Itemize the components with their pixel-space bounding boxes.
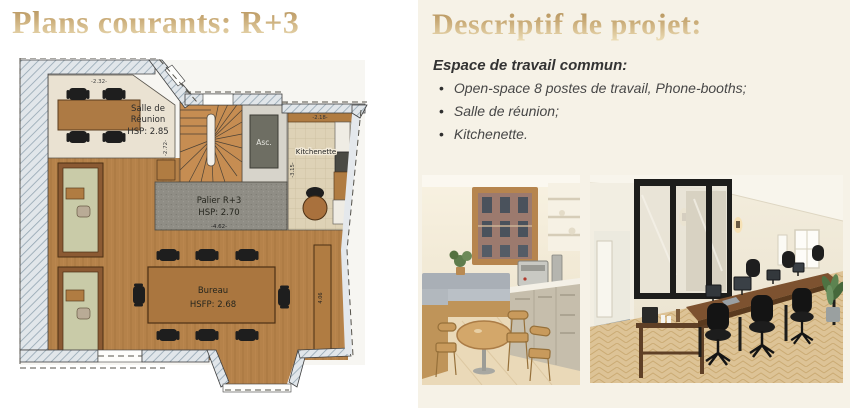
floor-plan-drawing: Salle de Réunion HSP: 2.85 -2.32- -2.72-… [15,58,405,408]
dim-kitchenette-width: -2.18- [312,115,327,121]
glass-partition [634,179,732,299]
window [472,187,538,265]
floor-plan: Salle de Réunion HSP: 2.85 -2.32- -2.72-… [15,58,405,408]
dim-palier-width: -4.62- [211,224,227,230]
bureau-height-label: HSFP: 2.68 [190,300,236,310]
bureau-label: Bureau [198,286,228,296]
dim-bureau-side: 4.06 [318,292,324,303]
list-item-text: Kitchenette. [454,126,528,142]
page-title-right: Descriptif de projet: [432,8,702,42]
bullet-icon: • [433,80,444,96]
list-item: • Kitchenette. [433,126,833,142]
window-bench: 4.06 [314,245,331,350]
cabinet [157,160,175,180]
dim-kitchenette-depth: -3.15- [290,162,296,177]
description-list: • Open-space 8 postes de travail, Phone-… [433,80,833,142]
description-heading: Espace de travail commun: [433,57,833,74]
open-space-photo [590,175,843,383]
page-title-left: Plans courants: R+3 [12,4,299,41]
list-item-text: Open-space 8 postes de travail, Phone-bo… [454,80,747,96]
kitchenette-room: Kitchenette -2.18- -3.15- [288,112,352,230]
list-item-text: Salle de réunion; [454,103,559,119]
salle-label-line1: Salle de [131,104,165,114]
dim-salle-depth: -2.72- [163,140,169,156]
phone-booth-1 [58,163,103,257]
project-description: Espace de travail commun: • Open-space 8… [433,57,833,149]
kitchenette-photo [422,175,580,385]
meeting-table [58,100,140,130]
list-item: • Salle de réunion; [433,103,833,119]
elevator: Asc. [250,115,278,168]
kitchenette-label: Kitchenette [296,148,336,156]
elevator-label: Asc. [256,138,272,147]
palier-label: Palier R+3 [197,196,242,206]
bullet-icon: • [433,126,444,142]
open-shelves [548,183,580,251]
salle-label-line2: Réunion [131,114,165,125]
kitchen-round-table [303,196,327,220]
dim-salle-width: -2.32- [91,79,107,85]
staircase [180,102,242,182]
palier-landing: Palier R+3 HSP: 2.70 -4.62- [155,182,287,230]
bullet-icon: • [433,103,444,119]
palier-height-label: HSP: 2.70 [198,208,239,218]
phone-booth-2 [58,267,103,357]
salle-height-label: HSP: 2.85 [127,127,168,137]
list-item: • Open-space 8 postes de travail, Phone-… [433,80,833,96]
